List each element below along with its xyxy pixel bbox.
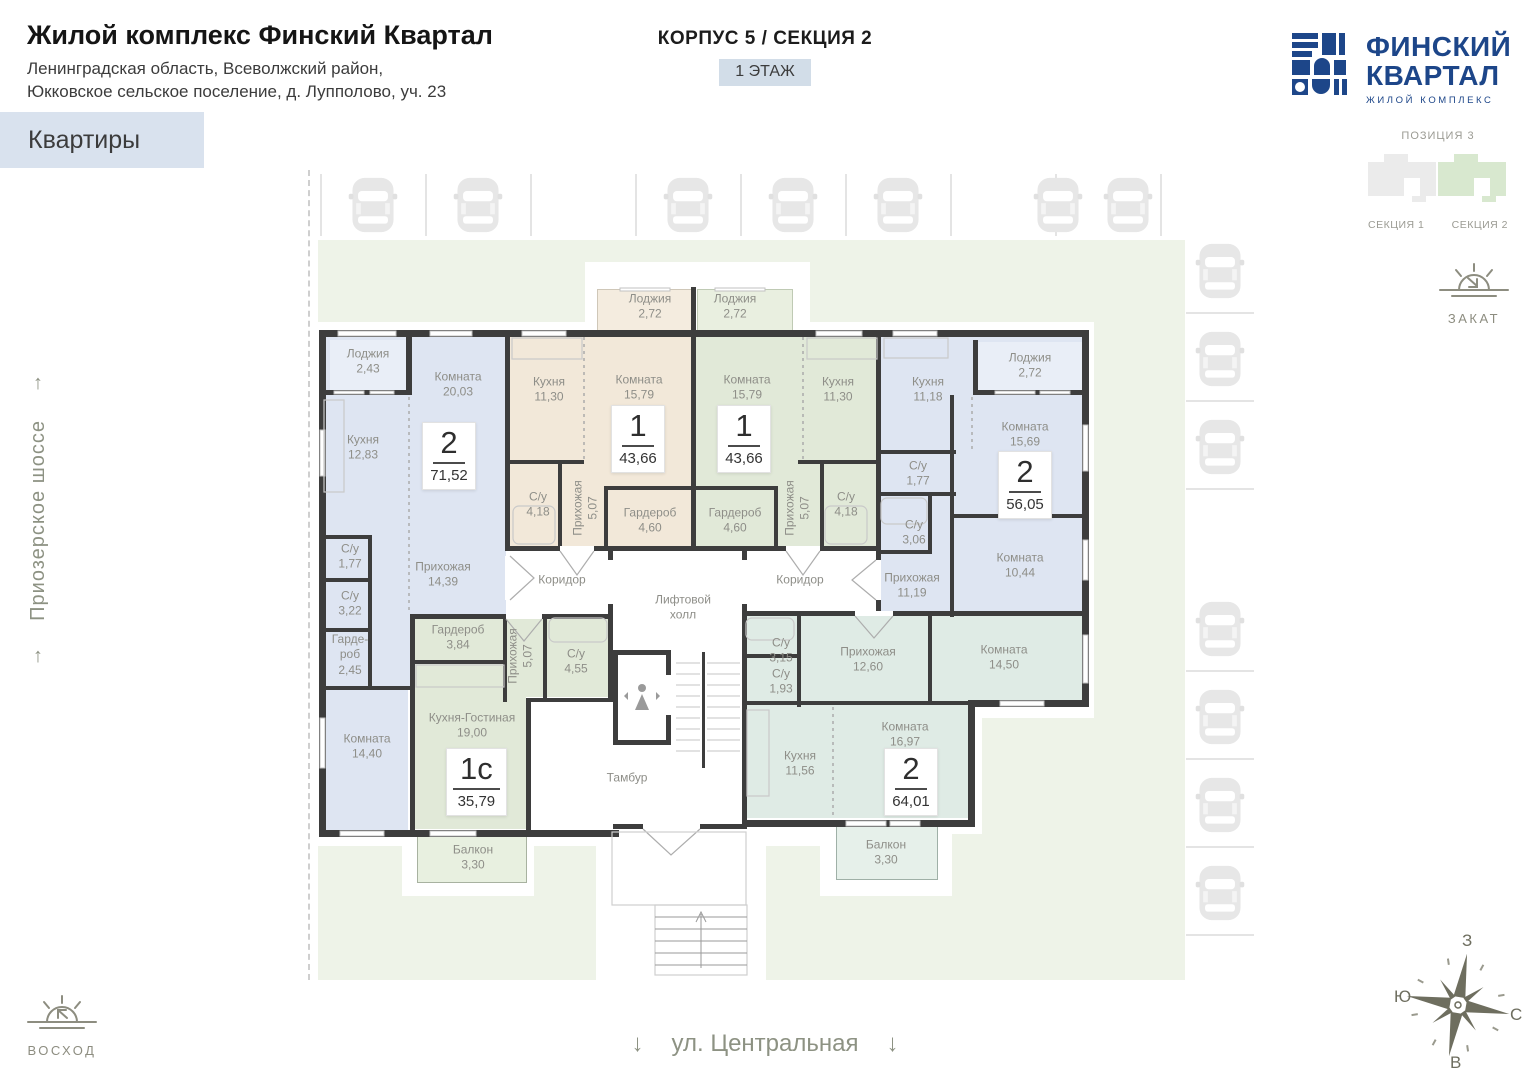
arrow-down-icon: ↓ [886,1030,898,1058]
apartment-badge[interactable]: 143,66 [717,405,771,473]
car-icon [1192,328,1248,390]
compass: З Ю С В [1392,935,1524,1073]
section1-label[interactable]: СЕКЦИЯ 1 [1368,219,1424,231]
apartment-badge[interactable]: 271,52 [422,422,476,490]
parking-divider [1186,488,1254,490]
car-icon [1192,598,1248,660]
road-label-left: ↑ Приозерское шоссе ↑ [12,372,64,668]
position-minimap: ПОЗИЦИЯ 3 СЕКЦИЯ 1 СЕКЦИЯ 2 [1366,130,1510,231]
brand-name-line1: ФИНСКИЙ [1366,33,1511,62]
street-bottom-name: ул. Центральная [672,1030,859,1058]
compass-south-label: Ю [1394,987,1411,1007]
parking-divider [1160,174,1162,236]
apartment-region-1-43-left[interactable] [509,337,693,548]
brand-logo-icon [1292,33,1354,95]
street-label-bottom: ↓ ул. Центральная ↓ [560,1030,970,1058]
apartments-filter-button[interactable]: Квартиры [0,112,204,168]
car-icon [660,174,716,236]
section-2-shape[interactable] [1438,154,1506,202]
parking-divider [425,174,427,236]
sunset-icon [1436,252,1512,304]
page: Жилой комплекс Финский Квартал Ленинград… [0,0,1529,1080]
section-1-shape[interactable] [1368,154,1436,202]
ground-patch [596,824,766,986]
apartment-region-2-71[interactable] [326,690,408,830]
apartment-badge[interactable]: 1с35,79 [446,748,507,816]
car-icon [345,174,401,236]
loggia-region [697,289,793,335]
car-icon [1100,174,1156,236]
section2-label[interactable]: СЕКЦИЯ 2 [1452,219,1508,231]
car-icon [1192,862,1248,924]
sunset-label: ЗАКАТ [1436,311,1512,326]
arrow-up-icon: ↑ [33,372,43,395]
floor-badge: 1 ЭТАЖ [719,59,811,86]
apartment-badge[interactable]: 143,66 [611,405,665,473]
road-left-name: Приозерское шоссе [27,420,50,621]
sunrise-marker: ВОСХОД [24,984,100,1058]
apartment-region-1c-35[interactable] [414,618,610,697]
brand-logo: ФИНСКИЙ КВАРТАЛ ЖИЛОЙ КОМПЛЕКС [1292,33,1511,106]
car-icon [1030,174,1086,236]
parking-divider [845,174,847,236]
loggia-region [977,342,1082,392]
corpus-header: КОРПУС 5 / СЕКЦИЯ 2 1 ЭТАЖ [620,28,910,86]
sunset-marker: ЗАКАТ [1436,252,1512,326]
car-icon [765,174,821,236]
car-icon [1192,416,1248,478]
car-icon [450,174,506,236]
brand-tagline: ЖИЛОЙ КОМПЛЕКС [1366,95,1511,106]
parking-divider [1186,312,1254,314]
parking-divider [320,174,322,236]
apartment-badge[interactable]: 264,01 [884,748,938,816]
loggia-region [330,340,408,392]
sunrise-label: ВОСХОД [24,1043,100,1058]
car-icon [1192,686,1248,748]
loggia-region [597,289,693,335]
car-icon [1192,240,1248,302]
brand-name-line2: КВАРТАЛ [1366,62,1511,91]
compass-west-label: З [1462,931,1472,951]
arrow-up-icon: ↑ [33,645,43,668]
car-icon [1192,774,1248,836]
compass-east-label: В [1450,1053,1461,1073]
balcony-region [836,822,938,880]
page-subtitle: Ленинградская область, Всеволжский район… [27,58,446,104]
parking-divider [1186,400,1254,402]
road-boundary-dashed-line [308,170,310,980]
corpus-title: КОРПУС 5 / СЕКЦИЯ 2 [620,28,910,50]
parking-divider [530,174,532,236]
balcony-region [417,833,527,883]
page-title: Жилой комплекс Финский Квартал [27,20,493,51]
subtitle-line1: Ленинградская область, Всеволжский район… [27,58,446,81]
sunrise-icon [24,984,100,1036]
parking-divider [950,174,952,236]
apartment-region-2-64[interactable] [932,616,1082,700]
apartment-badge[interactable]: 256,05 [998,451,1052,519]
car-icon [870,174,926,236]
position-label: ПОЗИЦИЯ 3 [1366,130,1510,142]
compass-north-label: С [1510,1005,1522,1025]
arrow-down-icon: ↓ [632,1030,644,1058]
parking-divider [635,174,637,236]
parking-divider [740,174,742,236]
parking-divider [1186,670,1254,672]
apartment-region-2-71[interactable] [326,617,412,690]
parking-divider [1186,934,1254,936]
position-minimap-shapes [1366,146,1510,210]
parking-divider [1186,758,1254,760]
subtitle-line2: Юкковское сельское поселение, д. Лупполо… [27,81,446,104]
parking-divider [1186,846,1254,848]
